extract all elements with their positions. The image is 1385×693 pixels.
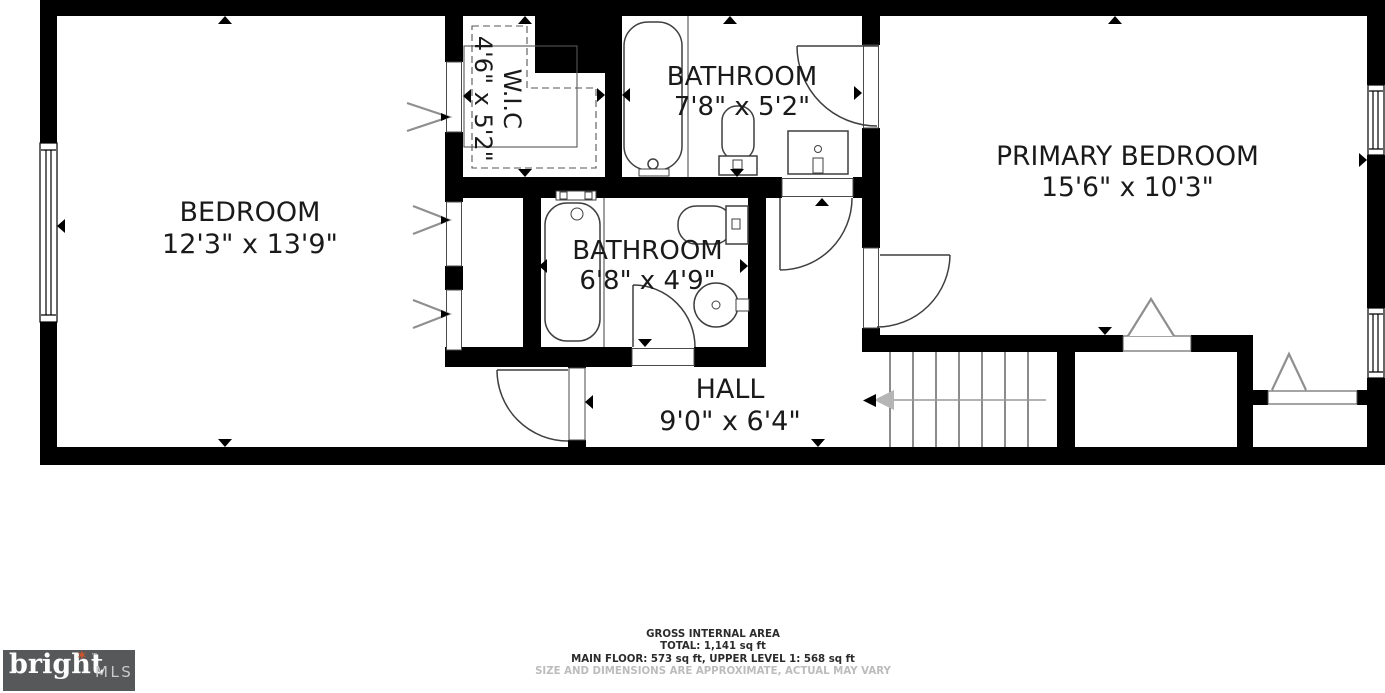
room-dims: 15'6" x 10'3": [955, 172, 1300, 203]
stairs-direction-arrow-outer: [874, 390, 894, 410]
room-label-bathroom-mid: BATHROOM 6'8" x 4'9": [545, 236, 750, 297]
room-label-bedroom: BEDROOM 12'3" x 13'9": [100, 197, 400, 260]
area-summary: GROSS INTERNAL AREA TOTAL: 1,141 sq ft M…: [393, 629, 1033, 679]
logo-brand-text: bright: [9, 649, 103, 680]
room-name: BATHROOM: [622, 62, 862, 92]
door-hall-bedroom: [497, 370, 568, 441]
logo-trademark: ™: [91, 652, 98, 660]
room-label-wic: W.I.C 4'6" x 5'2": [468, 24, 526, 174]
stairs-direction-arrow: [863, 394, 876, 407]
room-name: HALL: [630, 374, 830, 406]
floor-plan-page: BEDROOM 12'3" x 13'9" W.I.C 4'6" x 5'2" …: [0, 0, 1385, 693]
room-name: BATHROOM: [545, 236, 750, 266]
door-alcove: [780, 198, 852, 270]
logo-star-icon: ✶: [76, 648, 88, 664]
room-dims: 9'0" x 6'4": [630, 406, 830, 438]
staircase: [863, 352, 1046, 447]
logo-suffix-text: MLS: [95, 663, 133, 681]
accordion-door-symbols: [407, 103, 450, 328]
room-name: BEDROOM: [100, 197, 400, 229]
room-dims: 4'6" x 5'2": [468, 24, 497, 174]
vanity-sink-top: [788, 131, 848, 174]
window-right-lower: [1368, 308, 1384, 378]
area-summary-disclaimer: SIZE AND DIMENSIONS ARE APPROXIMATE, ACT…: [393, 666, 1033, 678]
brightmls-logo: bright ✶ ™ MLS: [3, 650, 135, 691]
area-summary-breakdown: MAIN FLOOR: 573 sq ft, UPPER LEVEL 1: 56…: [393, 654, 1033, 666]
room-label-primary-bedroom: PRIMARY BEDROOM 15'6" x 10'3": [955, 141, 1300, 203]
room-label-hall: HALL 9'0" x 6'4": [630, 374, 830, 437]
window-right-upper: [1368, 85, 1384, 155]
room-label-bathroom-top: BATHROOM 7'8" x 5'2": [622, 62, 862, 123]
window-left: [40, 143, 57, 322]
area-summary-title: GROSS INTERNAL AREA: [393, 629, 1033, 641]
room-dims: 7'8" x 5'2": [622, 92, 862, 122]
area-summary-total: TOTAL: 1,141 sq ft: [393, 641, 1033, 653]
room-dims: 6'8" x 4'9": [545, 266, 750, 296]
room-name: PRIMARY BEDROOM: [955, 141, 1300, 172]
room-name: W.I.C: [497, 24, 526, 174]
room-dims: 12'3" x 13'9": [100, 229, 400, 261]
door-primary-bedroom: [877, 255, 950, 327]
